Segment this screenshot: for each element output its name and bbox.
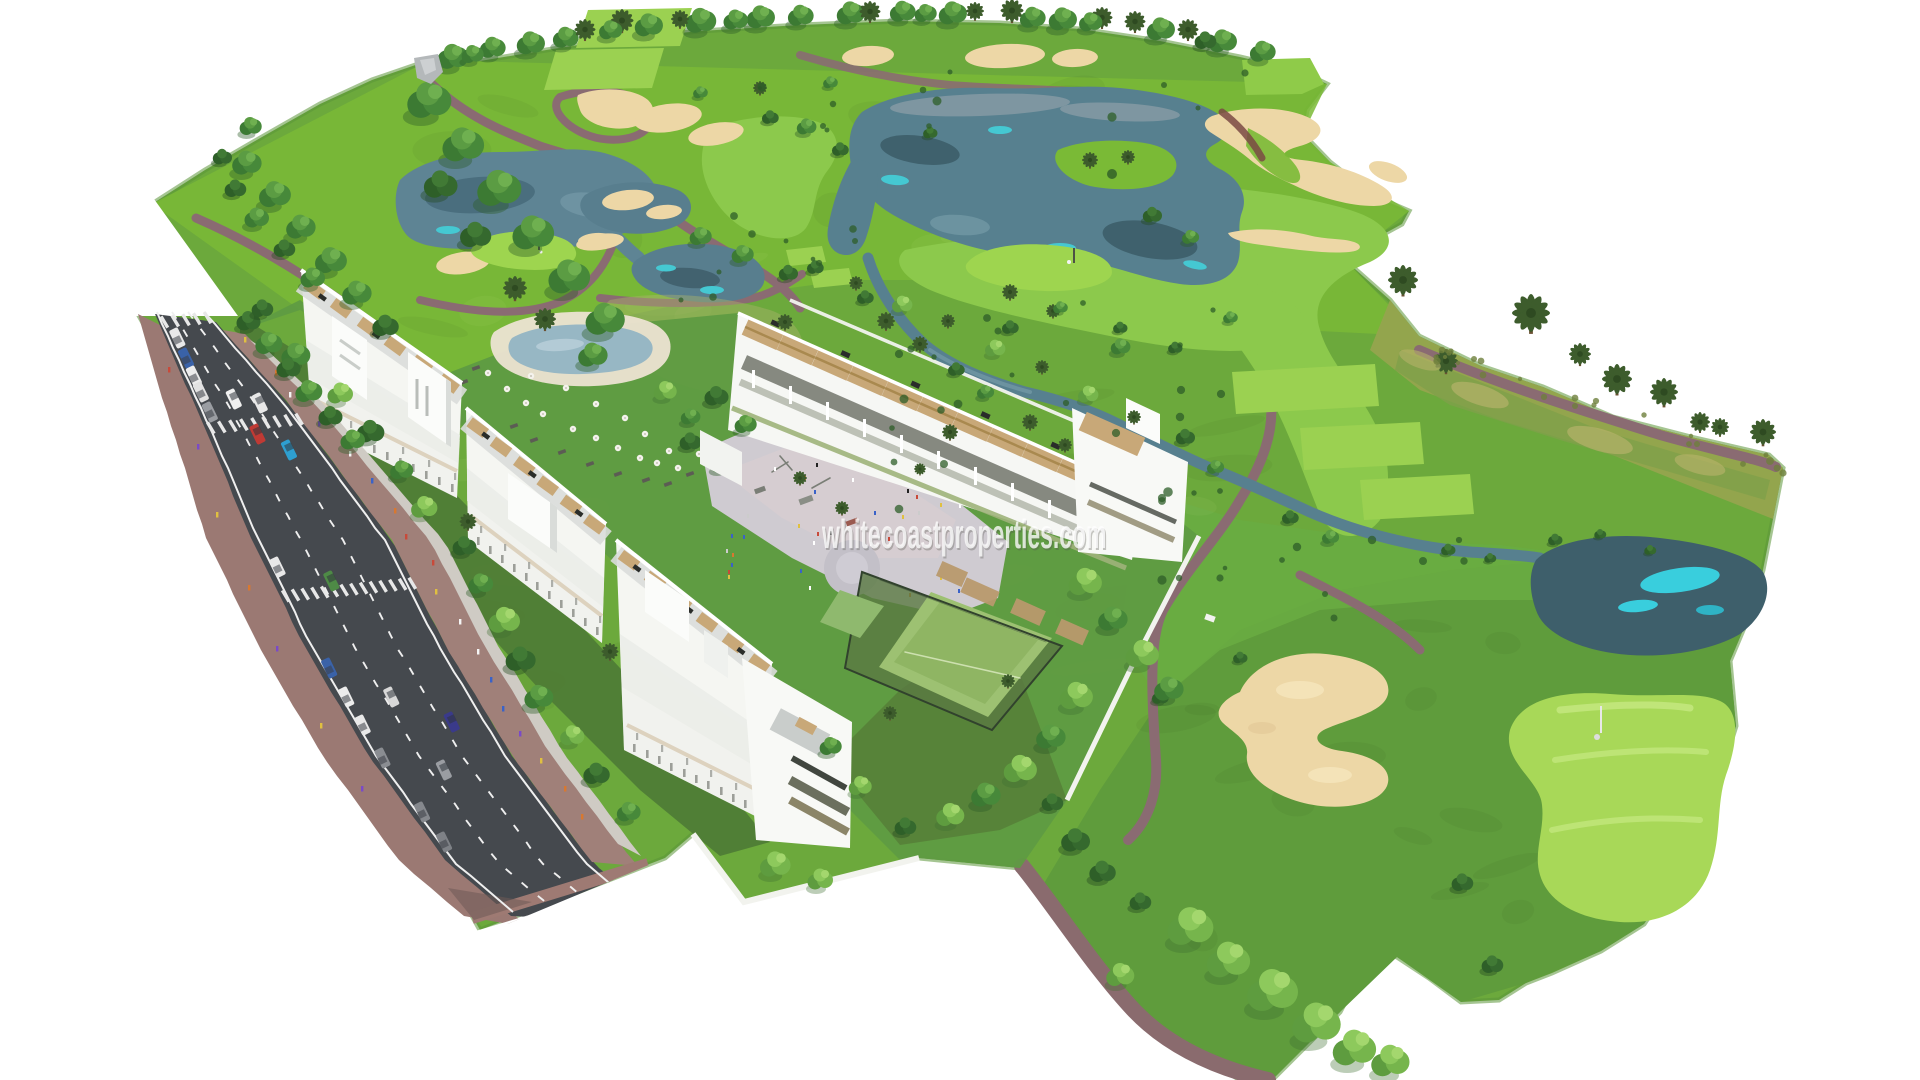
svg-text:whitecoastproperties.com: whitecoastproperties.com [821, 512, 1106, 558]
